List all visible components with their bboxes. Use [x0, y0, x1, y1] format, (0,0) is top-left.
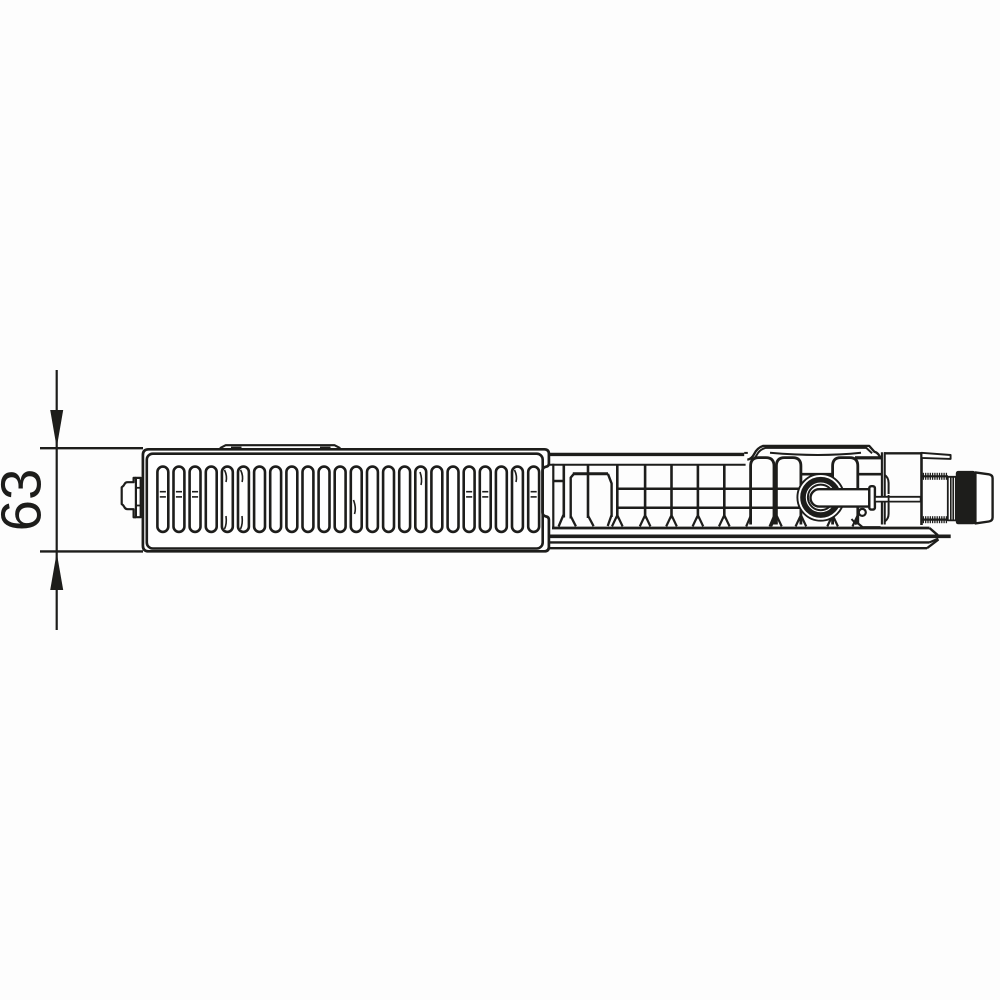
svg-text:63: 63 — [0, 469, 53, 532]
